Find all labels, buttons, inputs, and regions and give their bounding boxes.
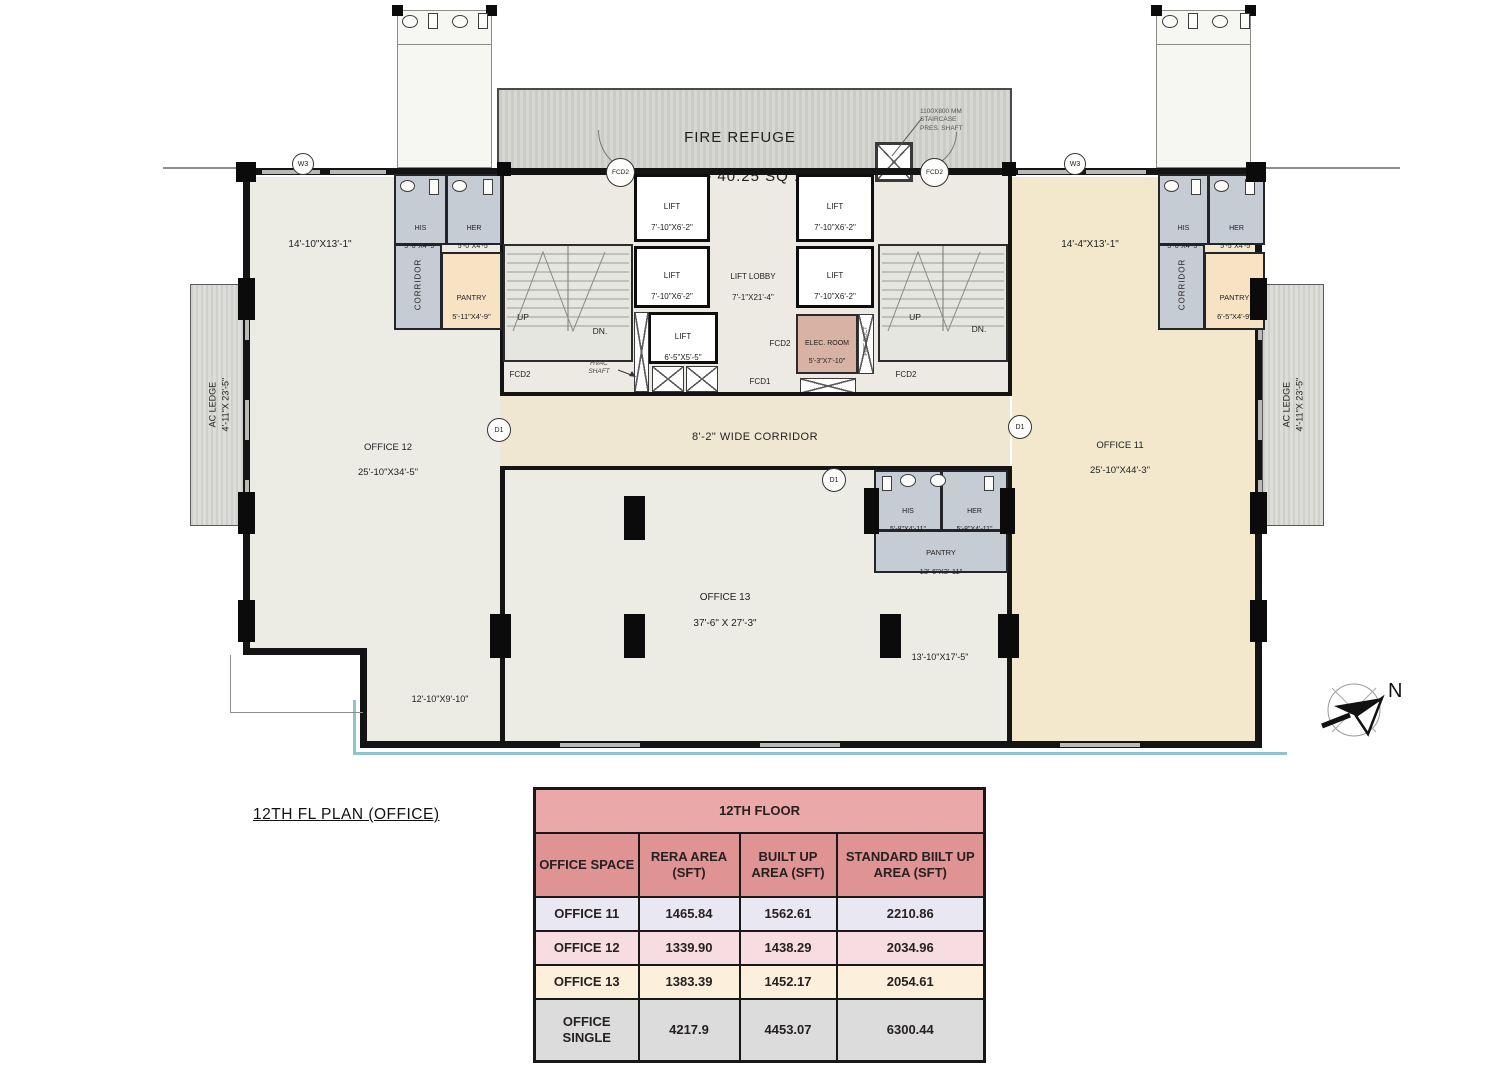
terrace-line [230,712,363,713]
left-duct-tower [397,10,492,168]
room-name: PANTRY [874,548,1008,558]
lift-lobby-label: LIFT LOBBY 7'-1"X21'-4" [710,262,796,314]
office-name: OFFICE 12 [308,442,468,454]
marker-d1-left: D1 [487,418,511,442]
cell-rera: 1339.90 [639,931,740,965]
wall-bottom-left [243,648,367,655]
ac-ledge-name: AC LEDGE [206,330,219,480]
dn-label-left: DN. [585,326,615,337]
plan-title: 12TH FL PLAN (OFFICE) [253,806,439,824]
wc-icon [483,179,493,195]
right-staircase [878,244,1008,362]
sink-icon [452,15,468,28]
column [1250,600,1267,642]
shaft-box [686,366,718,392]
ac-ledge-left-label: AC LEDGE 4'-11"X 23'-5" [206,330,231,480]
right-her-label: HER 5'-5"X4'-5" [1208,215,1265,260]
room-name: HIS [1158,224,1209,233]
room-name: ELEC. ROOM [792,339,862,348]
stair-treads [505,246,631,360]
sink-icon [1214,180,1229,192]
sink-icon [900,474,916,487]
fcd2-label-left: FCD2 [500,370,540,380]
room-name: LIFT LOBBY [710,272,796,282]
water-line [353,752,1287,755]
marker-fcd2-top-right: FCD2 [920,158,949,187]
cell-standard: 2034.96 [837,931,985,965]
wc-icon [984,476,994,491]
room-dims: 7'-10"X6'-2" [796,223,874,233]
wc-icon [478,13,488,29]
column [1250,278,1267,320]
cell-standard: 2054.61 [837,965,985,999]
room-dims: 5'-8"X4'-11" [874,525,942,534]
room-name: LIFT [634,202,710,212]
dim-line-right [1262,167,1400,169]
office11-upper-dim: 14'-4"X13'-1" [1010,238,1170,251]
cell-office-name: OFFICE SINGLE [535,999,639,1062]
window [1060,743,1140,747]
staircase-shaft-note: 1100X800 MM STAIRCASE PRES. SHAFT [920,108,998,133]
room-name: PANTRY [441,293,502,303]
elec-room-label: ELEC. ROOM 5'-3"X7'-10" [792,330,862,375]
room-dims: 5'-8"X4'-11" [941,525,1008,534]
room-name: LIFT [796,202,874,212]
column [1000,488,1015,534]
ac-ledge-dims: 4'-11"X 23'-5" [1293,330,1306,480]
column [238,492,255,534]
wc-icon [429,179,439,195]
column [236,162,256,182]
up-label-left: UP [508,312,538,323]
marker-d1-mid: D1 [822,468,846,492]
divider [397,44,492,45]
floor-plan-sheet: FIRE REFUGE AREA - 40.25 SQ .M . 1100X80… [0,0,1500,1067]
left-staircase [503,244,633,362]
window [245,400,249,440]
sink-icon [402,15,418,28]
sink-icon [930,474,946,487]
right-duct-tower [1156,10,1251,168]
office-dims: 37'-6" X 27'-3" [640,617,810,630]
room-name: LIFT [796,271,874,281]
sink-icon [1212,15,1228,28]
fcd2-label-right: FCD2 [886,370,926,380]
cell-office-name: OFFICE 11 [535,897,639,931]
table-row: OFFICE SINGLE 4217.9 4453.07 6300.44 [535,999,985,1062]
room-dims: 7'-1"X21'-4" [710,293,796,303]
column [392,5,403,16]
room-name: HIS [394,224,447,233]
divider [1156,44,1251,45]
office13-side-dim: 13'-10"X17'-5" [860,652,1020,664]
fire-duct-label: FIRE DUCT [863,302,869,380]
column [1246,162,1266,182]
water-line-left [353,700,356,755]
cell-built: 1562.61 [740,897,837,931]
room-name: HER [1208,224,1265,233]
room-name: HIS [874,507,942,516]
cell-rera: 1465.84 [639,897,740,931]
wc-icon [882,476,892,491]
column [864,488,879,534]
north-label: N [1388,680,1402,703]
room-dims: 5'-5"X4'-5" [1208,242,1265,251]
mid-pantry-label: PANTRY 13'-6"X3'-11" [874,538,1008,587]
room-dims: 5'-3"X7'-10" [792,357,862,366]
office-name: OFFICE 13 [640,591,810,604]
office12-upper-dim: 14'-10"X13'-1" [240,238,400,251]
column [497,162,511,176]
wc-icon [1188,13,1198,29]
table-row: OFFICE 13 1383.39 1452.17 2054.61 [535,965,985,999]
left-her-label: HER 5'-0"X4'-5" [446,215,502,260]
window [1258,400,1262,440]
cell-office-name: OFFICE 12 [535,931,639,965]
window [1086,170,1146,174]
lift-label: LIFT 7'-10"X6'-2" [634,192,710,244]
ac-ledge-dims: 4'-11"X 23'-5" [219,330,232,480]
table-row: OFFICE 11 1465.84 1562.61 2210.86 [535,897,985,931]
marker-w3-right: W3 [1064,153,1086,175]
up-label-right: UP [900,312,930,323]
lift-label: LIFT 7'-10"X6'-2" [634,261,710,313]
fcd2-label-mid: FCD2 [760,339,800,349]
marker-w3-left: W3 [292,153,314,175]
office12-lower-dim: 12'-10"X9'-10" [370,694,510,706]
column [624,496,645,540]
area-table: 12TH FLOOR OFFICE SPACE RERA AREA (SFT) … [533,787,986,1063]
terrace-line [230,655,231,712]
corridor-label: 8'-2" WIDE CORRIDOR [630,430,880,444]
column [1250,492,1267,534]
hvac-shaft-box [634,312,649,392]
sink-icon [452,180,467,192]
window [330,170,386,174]
cell-office-name: OFFICE 13 [535,965,639,999]
column [1151,5,1162,16]
office-dims: 25'-10"X34'-5" [308,467,468,479]
col-built-up-area: BUILT UP AREA (SFT) [740,833,837,897]
room-dims: 13'-6"X3'-11" [874,567,1008,577]
mid-her-label: HER 5'-8"X4'-11" [941,498,1008,543]
cell-rera: 1383.39 [639,965,740,999]
office-name: OFFICE 11 [1040,440,1200,452]
room-dims: 5'-11"X4'-9" [441,312,502,322]
cell-standard: 2210.86 [837,897,985,931]
cell-built: 1452.17 [740,965,837,999]
room-name: HER [446,224,502,233]
hvac-shaft-label: HVAC SHAFT [578,360,620,377]
dn-label-right: DN. [964,324,994,335]
column [1002,162,1016,176]
left-corridor-label: CORRIDOR [414,235,423,335]
office12-label: OFFICE 12 25'-10"X34'-5" [308,430,468,492]
column [490,614,511,658]
office13-wall-left [500,466,505,748]
table-row: OFFICE 12 1339.90 1438.29 2034.96 [535,931,985,965]
wc-icon [1191,179,1201,195]
dim-line-left [163,167,243,169]
room-dims: 7'-10"X6'-2" [796,292,874,302]
wall-step [360,648,367,748]
column [238,278,255,320]
room-name: LIFT [648,332,718,342]
mid-his-label: HIS 5'-8"X4'-11" [874,498,942,543]
col-standard-built-up: STANDARD BIILT UP AREA (SFT) [837,833,985,897]
office11-label: OFFICE 11 25'-10"X44'-3" [1040,428,1200,490]
north-compass: N [1318,668,1413,748]
corridor-wall-top [500,392,1012,396]
room-dims: 7'-10"X6'-2" [634,292,710,302]
window [760,743,840,747]
room-dims: 7'-10"X6'-2" [634,223,710,233]
cell-standard: 6300.44 [837,999,985,1062]
window [560,743,640,747]
left-pantry-label: PANTRY 5'-11"X4'-9" [441,283,502,332]
office13-label: OFFICE 13 37'-6" X 27'-3" [640,578,810,643]
ac-ledge-name: AC LEDGE [1280,330,1293,480]
lift-label: LIFT 7'-10"X6'-2" [796,192,874,244]
col-rera-area: RERA AREA (SFT) [639,833,740,897]
wc-icon [1240,13,1250,29]
shaft-box [652,366,684,392]
sink-icon [1162,15,1178,28]
hvac-arrow [618,366,638,380]
marker-fcd2-top-left: FCD2 [606,158,635,187]
cell-rera: 4217.9 [639,999,740,1062]
stair-treads [880,246,1006,360]
marker-d1-right: D1 [1008,415,1032,439]
table-title: 12TH FLOOR [535,789,985,834]
room-name: LIFT [634,271,710,281]
room-name: HER [941,507,1008,516]
col-office-space: OFFICE SPACE [535,833,639,897]
fcd1-label: FCD1 [740,377,780,387]
cell-built: 1438.29 [740,931,837,965]
column [238,600,255,642]
wc-icon [428,13,438,29]
office-dims: 25'-10"X44'-3" [1040,465,1200,477]
sink-icon [1164,180,1179,192]
room-dims: 6'-5"X5'-5" [648,353,718,363]
ac-ledge-right-label: AC LEDGE 4'-11"X 23'-5" [1280,330,1305,480]
fire-refuge-title: FIRE REFUGE [590,128,890,148]
room-dims: 5'-0"X4'-5" [446,242,502,251]
right-corridor-label: CORRIDOR [1178,235,1187,335]
sink-icon [400,180,415,192]
cell-built: 4453.07 [740,999,837,1062]
